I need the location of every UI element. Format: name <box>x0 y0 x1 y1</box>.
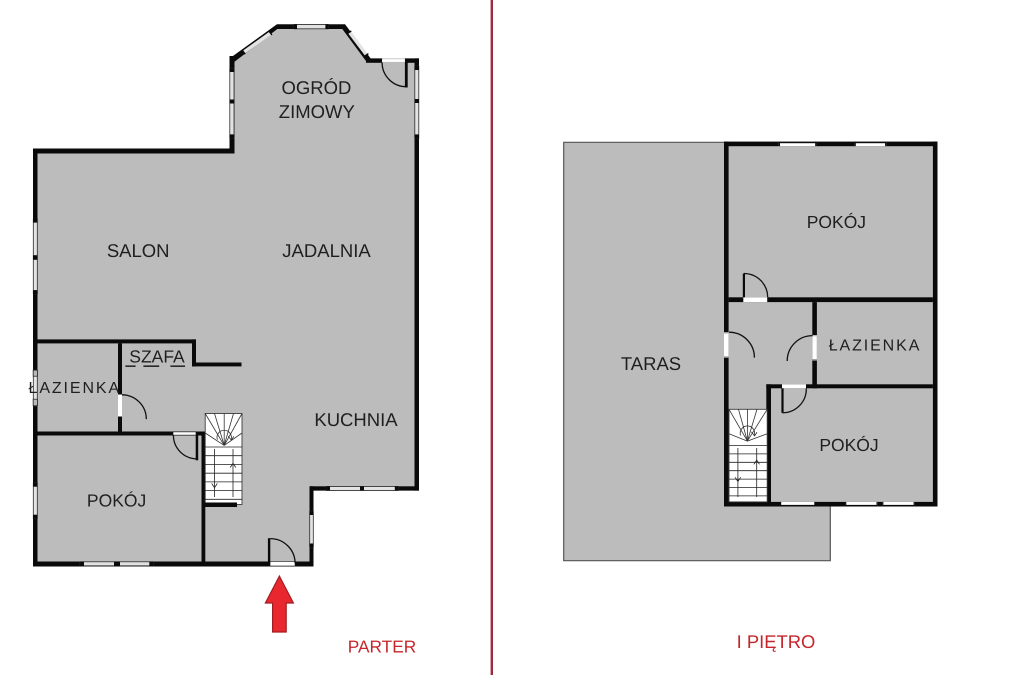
svg-text:PARTER: PARTER <box>348 637 417 657</box>
svg-text:ŁAZIENKA: ŁAZIENKA <box>829 338 922 355</box>
svg-text:KUCHNIA: KUCHNIA <box>314 409 398 430</box>
svg-text:OGRÓD: OGRÓD <box>281 77 351 98</box>
svg-text:ZIMOWY: ZIMOWY <box>279 101 355 122</box>
svg-text:POKÓJ: POKÓJ <box>87 490 146 510</box>
svg-text:POKÓJ: POKÓJ <box>819 435 878 455</box>
svg-text:SALON: SALON <box>107 240 170 261</box>
svg-text:TARAS: TARAS <box>621 353 681 374</box>
svg-text:POKÓJ: POKÓJ <box>807 212 866 232</box>
svg-text:SZAFA: SZAFA <box>129 347 185 367</box>
svg-text:I PIĘTRO: I PIĘTRO <box>737 631 816 652</box>
svg-text:JADALNIA: JADALNIA <box>282 240 371 261</box>
svg-text:ŁAZIENKA: ŁAZIENKA <box>29 380 122 397</box>
